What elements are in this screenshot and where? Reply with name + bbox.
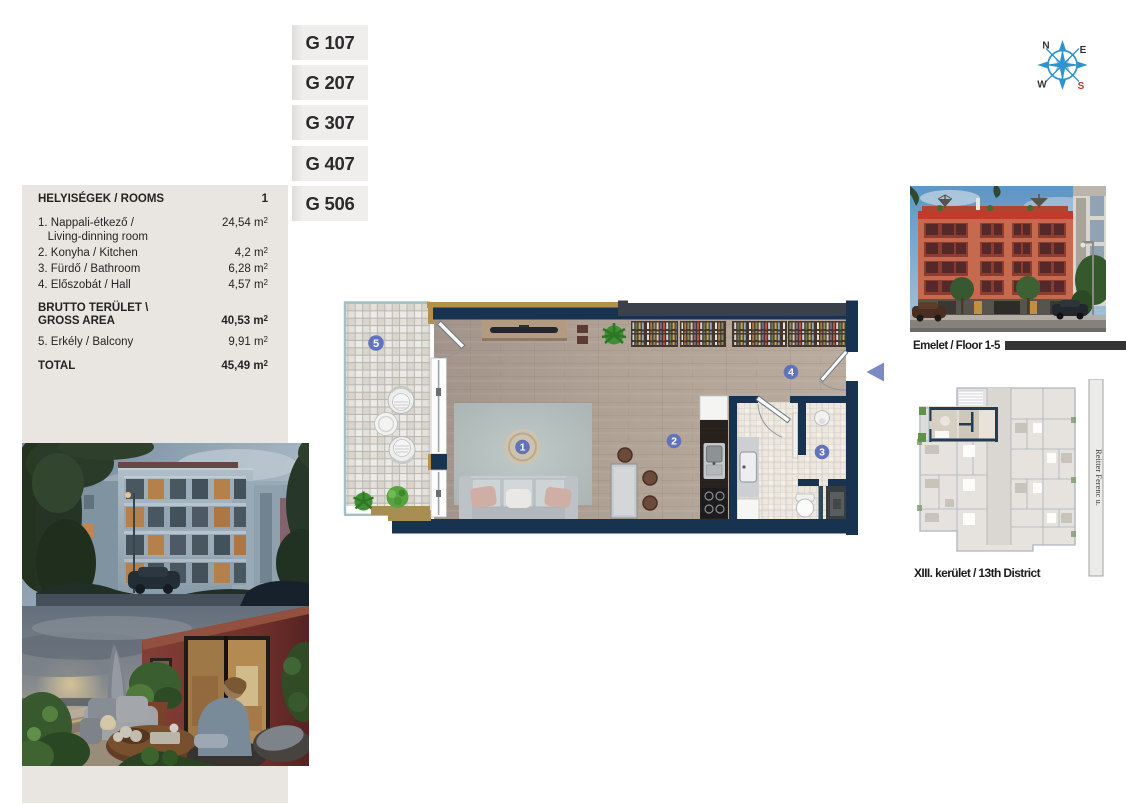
- svg-text:W: W: [1037, 80, 1047, 91]
- svg-text:S: S: [1078, 81, 1085, 92]
- svg-text:3: 3: [819, 447, 825, 459]
- svg-text:Reitter Ferenc u.: Reitter Ferenc u.: [1094, 449, 1104, 506]
- svg-text:1: 1: [520, 442, 526, 454]
- svg-text:4: 4: [788, 367, 794, 379]
- svg-text:E: E: [1080, 45, 1087, 56]
- svg-text:N: N: [1042, 41, 1049, 52]
- svg-text:2: 2: [671, 436, 677, 448]
- svg-text:5: 5: [373, 338, 379, 350]
